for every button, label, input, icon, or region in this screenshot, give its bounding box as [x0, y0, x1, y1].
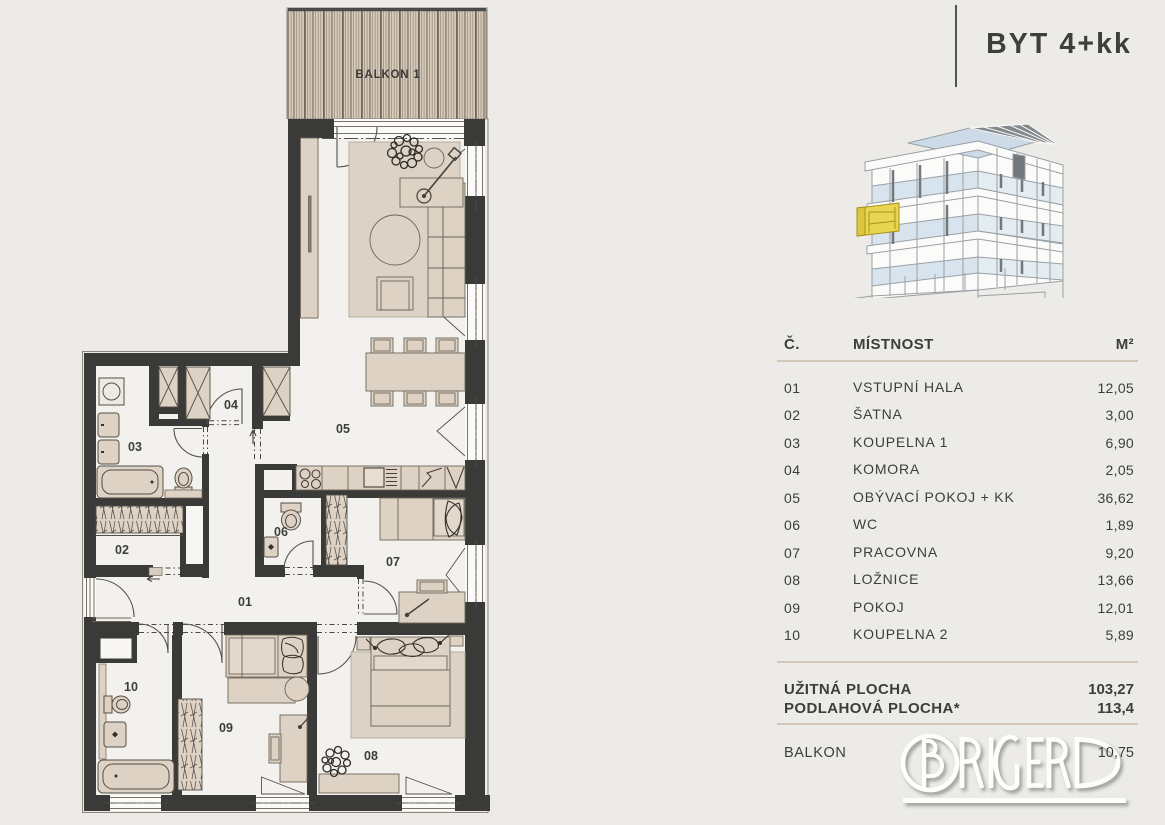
- svg-text:08: 08: [364, 749, 378, 763]
- svg-text:10: 10: [124, 680, 138, 694]
- svg-text:02: 02: [115, 543, 129, 557]
- svg-text:01: 01: [238, 595, 252, 609]
- svg-text:06: 06: [274, 525, 288, 539]
- svg-text:04: 04: [224, 398, 238, 412]
- svg-text:05: 05: [336, 422, 350, 436]
- svg-text:09: 09: [219, 721, 233, 735]
- svg-text:07: 07: [386, 555, 400, 569]
- svg-text:03: 03: [128, 440, 142, 454]
- svg-text:BALKON 1: BALKON 1: [355, 69, 420, 81]
